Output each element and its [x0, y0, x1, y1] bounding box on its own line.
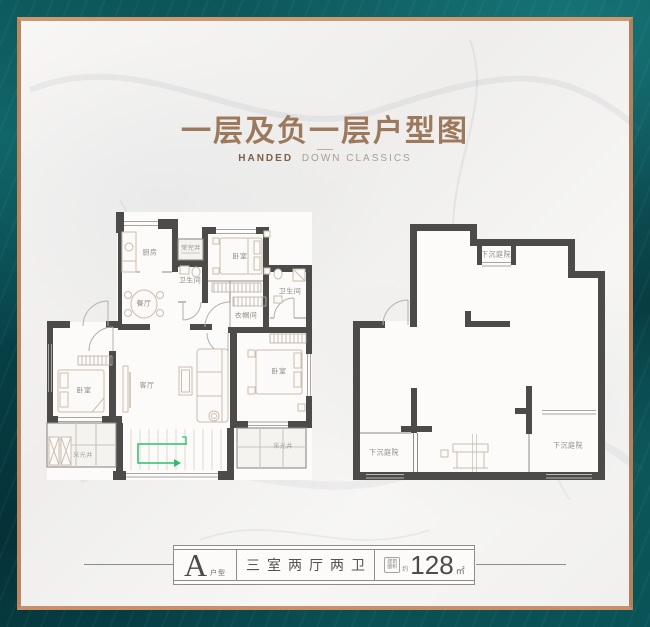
footer-rule-right	[476, 564, 566, 565]
subtitle-brand: HANDED	[238, 153, 293, 164]
page-background: 一层及负一层户型图 HANDED DOWN CLASSICS 厨房 采光井 卫生…	[0, 0, 650, 627]
unit-type-suffix: 户型	[210, 568, 226, 578]
room-label-bedroom-north: 卧室	[233, 254, 248, 261]
footer-spec-bar: A 户型 三室两厅两卫 建筑 面积 约 128 ㎡	[173, 545, 475, 585]
layout-cell: 三室两厅两卫	[236, 550, 375, 580]
area-cell: 建筑 面积 约 128 ㎡	[375, 550, 474, 580]
room-label-bathroom-main: 卫生间	[179, 278, 202, 285]
area-label-stamp: 建筑 面积	[384, 557, 400, 573]
room-label-living-room: 客厅	[140, 383, 155, 390]
header-ornament	[317, 149, 333, 150]
room-label-bedroom-east: 卧室	[272, 369, 287, 376]
subtitle-tagline: DOWN CLASSICS	[302, 153, 412, 164]
area-approx: 约	[402, 564, 408, 573]
room-label-bathroom-second: 卫生间	[279, 289, 302, 296]
room-label-light-well-southwest: 采光井	[73, 453, 93, 459]
room-label-cloakroom: 衣帽间	[235, 313, 258, 320]
unit-type-cell: A 户型	[174, 550, 236, 580]
room-label-dining-room: 餐厅	[137, 301, 152, 308]
room-label-kitchen: 厨房	[143, 250, 158, 257]
room-label-bedroom-west: 卧室	[77, 388, 92, 395]
page-title: 一层及负一层户型图	[0, 106, 650, 150]
room-label-sunken-courtyard-southeast: 下沉庭院	[553, 443, 583, 450]
layout-text: 三室两厅两卫	[239, 555, 372, 575]
room-label-light-well-north: 采光井	[181, 246, 201, 252]
page-subtitle: HANDED DOWN CLASSICS	[0, 153, 650, 164]
area-label-line2: 面积	[387, 565, 397, 571]
room-label-sunken-courtyard-north: 下沉庭院	[481, 252, 511, 259]
unit-type-letter: A	[184, 549, 207, 581]
footer-rule-left	[84, 564, 173, 565]
area-value: 128	[410, 552, 453, 578]
area-unit: ㎡	[456, 564, 465, 577]
room-label-light-well-southeast: 采光井	[273, 444, 293, 450]
room-label-sunken-courtyard-southwest: 下沉庭院	[369, 450, 399, 457]
footer-spec-inner: A 户型 三室两厅两卫 建筑 面积 约 128 ㎡	[174, 549, 474, 581]
